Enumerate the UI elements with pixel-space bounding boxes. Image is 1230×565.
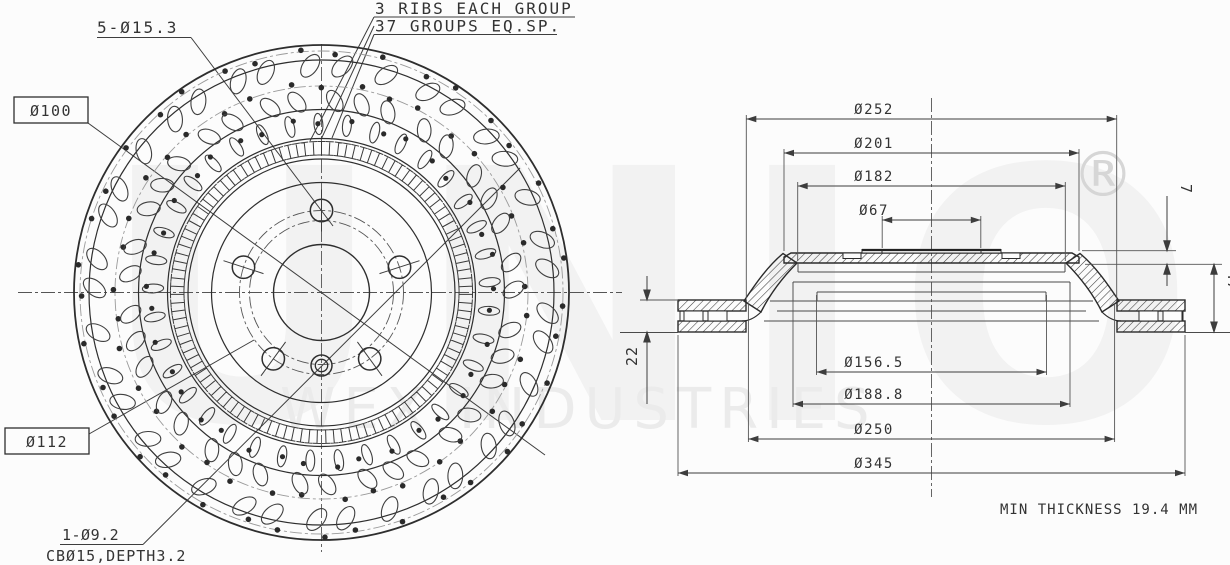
bolt-holes-note: 5-Ø15.3 [97, 18, 178, 37]
dim-67: Ø67 [859, 203, 889, 219]
drawing-canvas: UNIO ® WEX INDUSTRIES 5-Ø15.3 3 RIBS EAC… [0, 0, 1230, 565]
dim-hat-offset: 7 [1177, 184, 1195, 194]
dim-201: Ø201 [854, 136, 894, 152]
circle-label-100: Ø100 [30, 102, 72, 120]
rib-note-line2: 37 GROUPS EQ.SP. [375, 17, 561, 36]
hat-bolt-hole-left [843, 253, 861, 259]
circle-label-112: Ø112 [26, 433, 68, 451]
dim-thickness: 22 [623, 346, 641, 366]
dim-156-5: Ø156.5 [844, 355, 904, 371]
pin-hole-counterbore-note: CBØ15,DEPTH3.2 [46, 547, 186, 565]
dim-188-8: Ø188.8 [844, 387, 904, 403]
watermark-subtitle: WEX INDUSTRIES [280, 377, 878, 442]
dim-overall-height: 47 [1224, 271, 1230, 291]
dim-345: Ø345 [854, 456, 894, 472]
rib-note-line1: 3 RIBS EACH GROUP [375, 0, 573, 18]
hat-bolt-hole-right [1002, 253, 1020, 259]
min-thickness-note: MIN THICKNESS 19.4 MM [1000, 502, 1198, 518]
dim-250: Ø250 [854, 422, 894, 438]
brake-disc-technical-drawing: UNIO ® WEX INDUSTRIES 5-Ø15.3 3 RIBS EAC… [0, 0, 1230, 565]
dim-252: Ø252 [854, 102, 894, 118]
watermark-registered-icon: ® [1072, 138, 1134, 211]
dim-182: Ø182 [854, 169, 894, 185]
pin-hole-note: 1-Ø9.2 [62, 526, 119, 544]
watermark: UNIO ® WEX INDUSTRIES [100, 95, 1225, 503]
